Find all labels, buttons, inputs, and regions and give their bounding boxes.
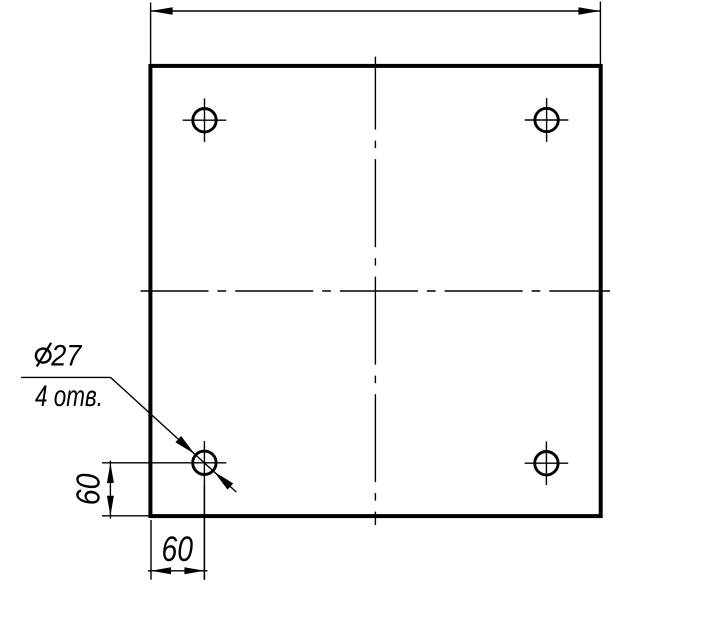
svg-text:60: 60 xyxy=(70,473,107,505)
svg-text:4 отв.: 4 отв. xyxy=(35,380,103,413)
svg-text:60: 60 xyxy=(162,530,194,569)
svg-text:27: 27 xyxy=(50,340,82,373)
